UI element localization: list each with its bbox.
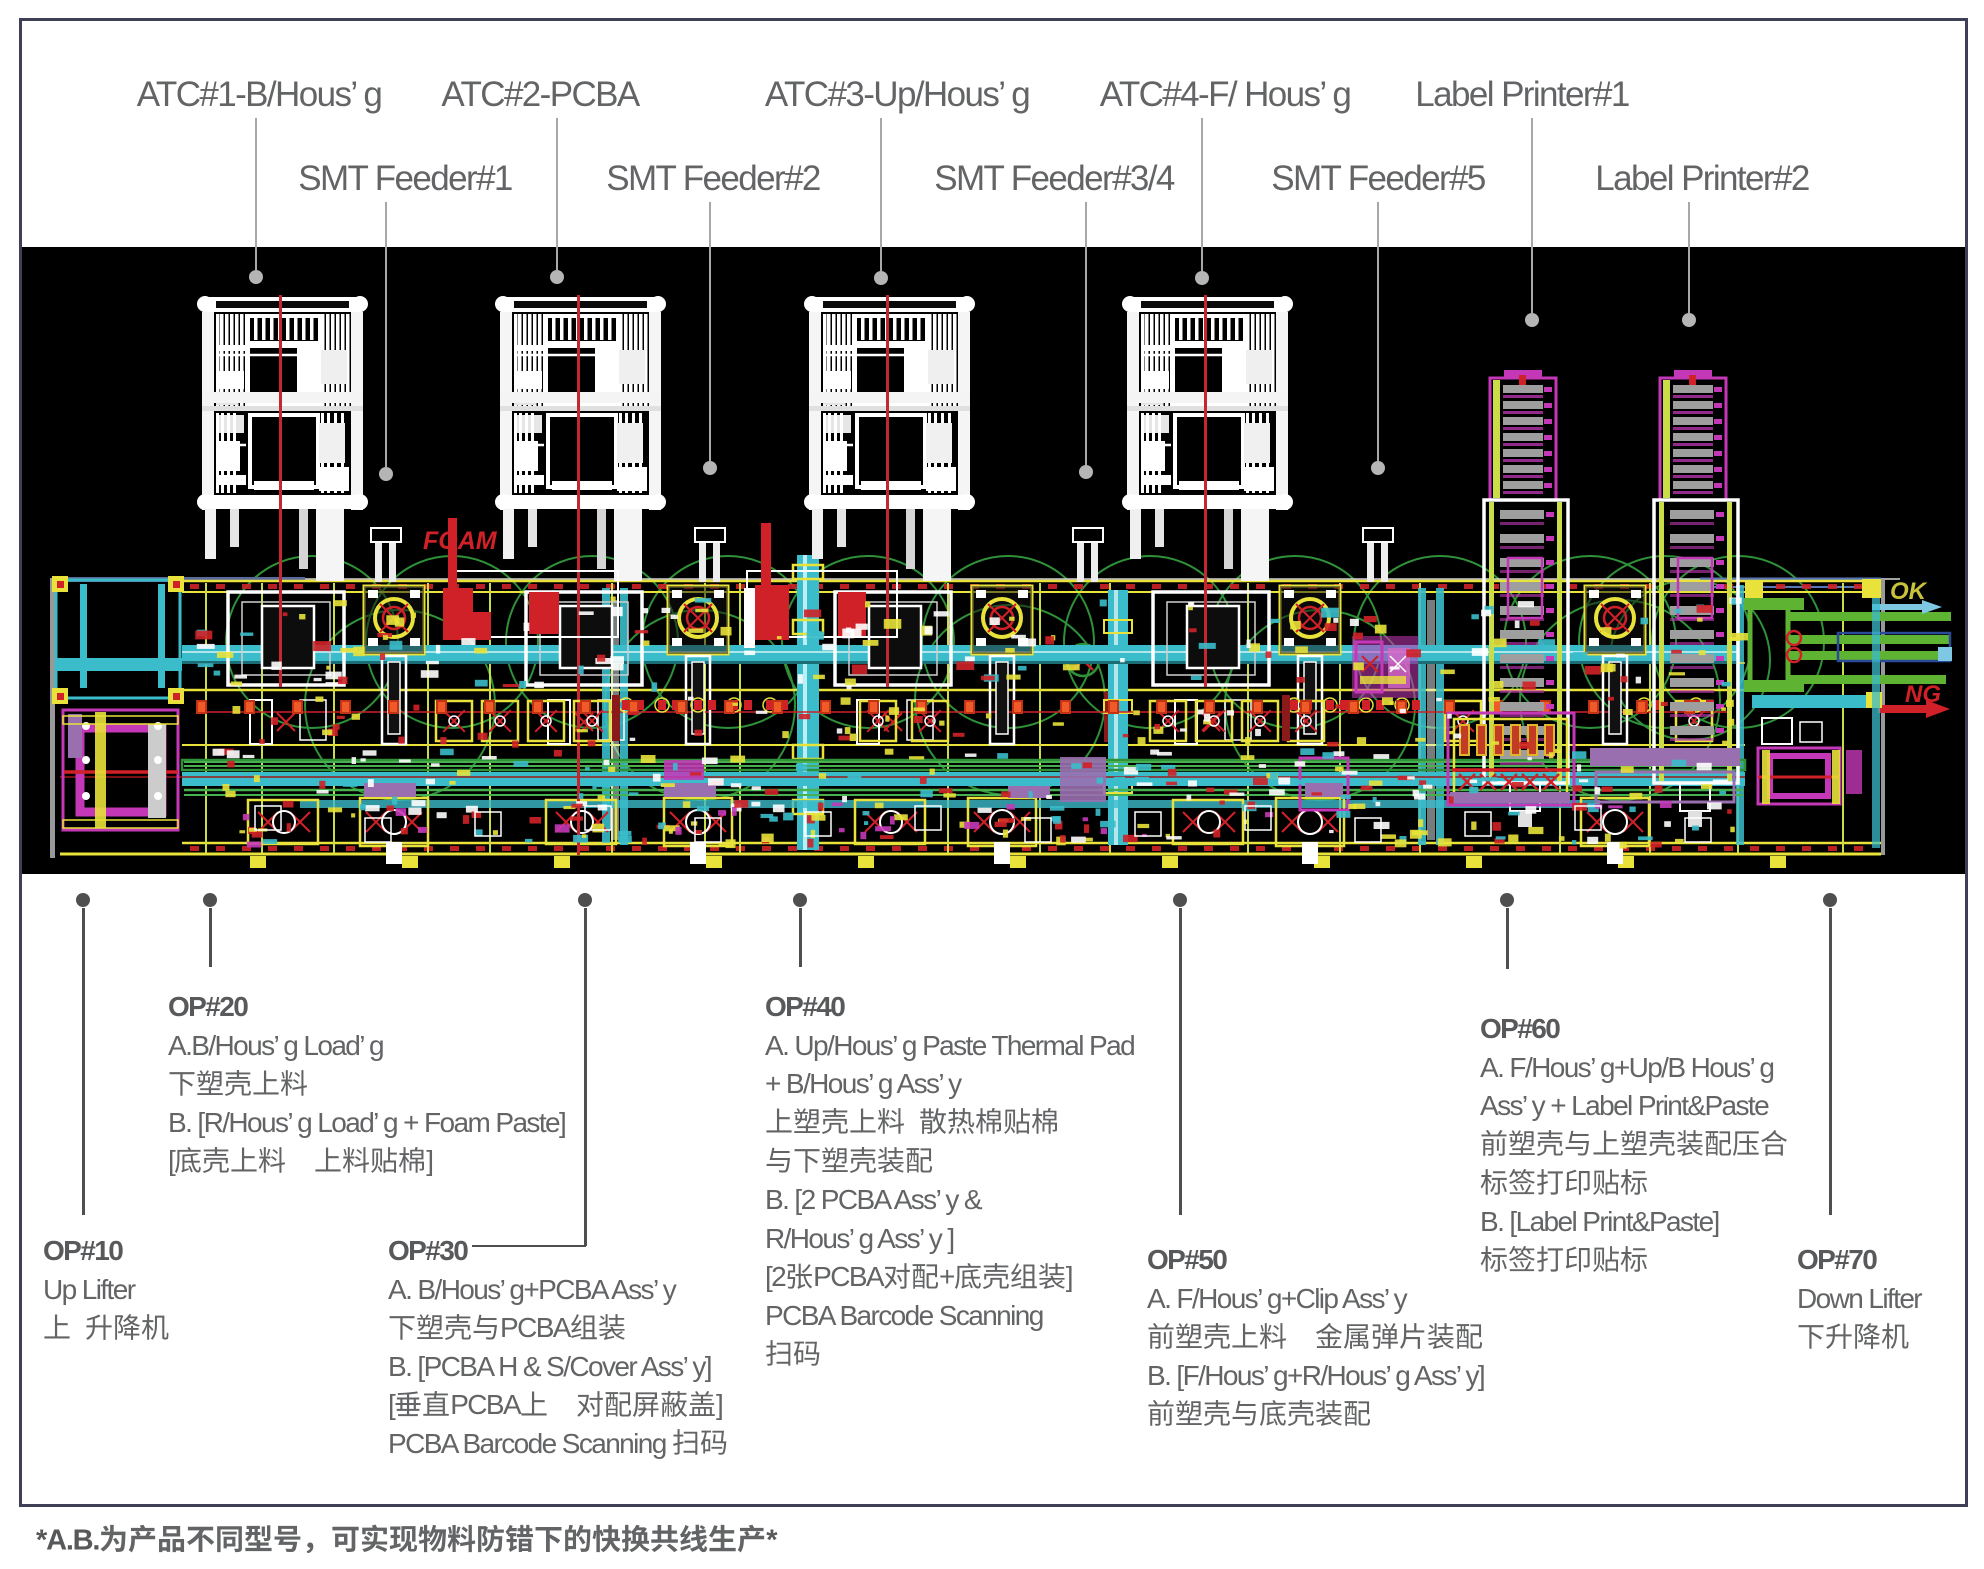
svg-text:FOAM: FOAM <box>423 527 498 555</box>
